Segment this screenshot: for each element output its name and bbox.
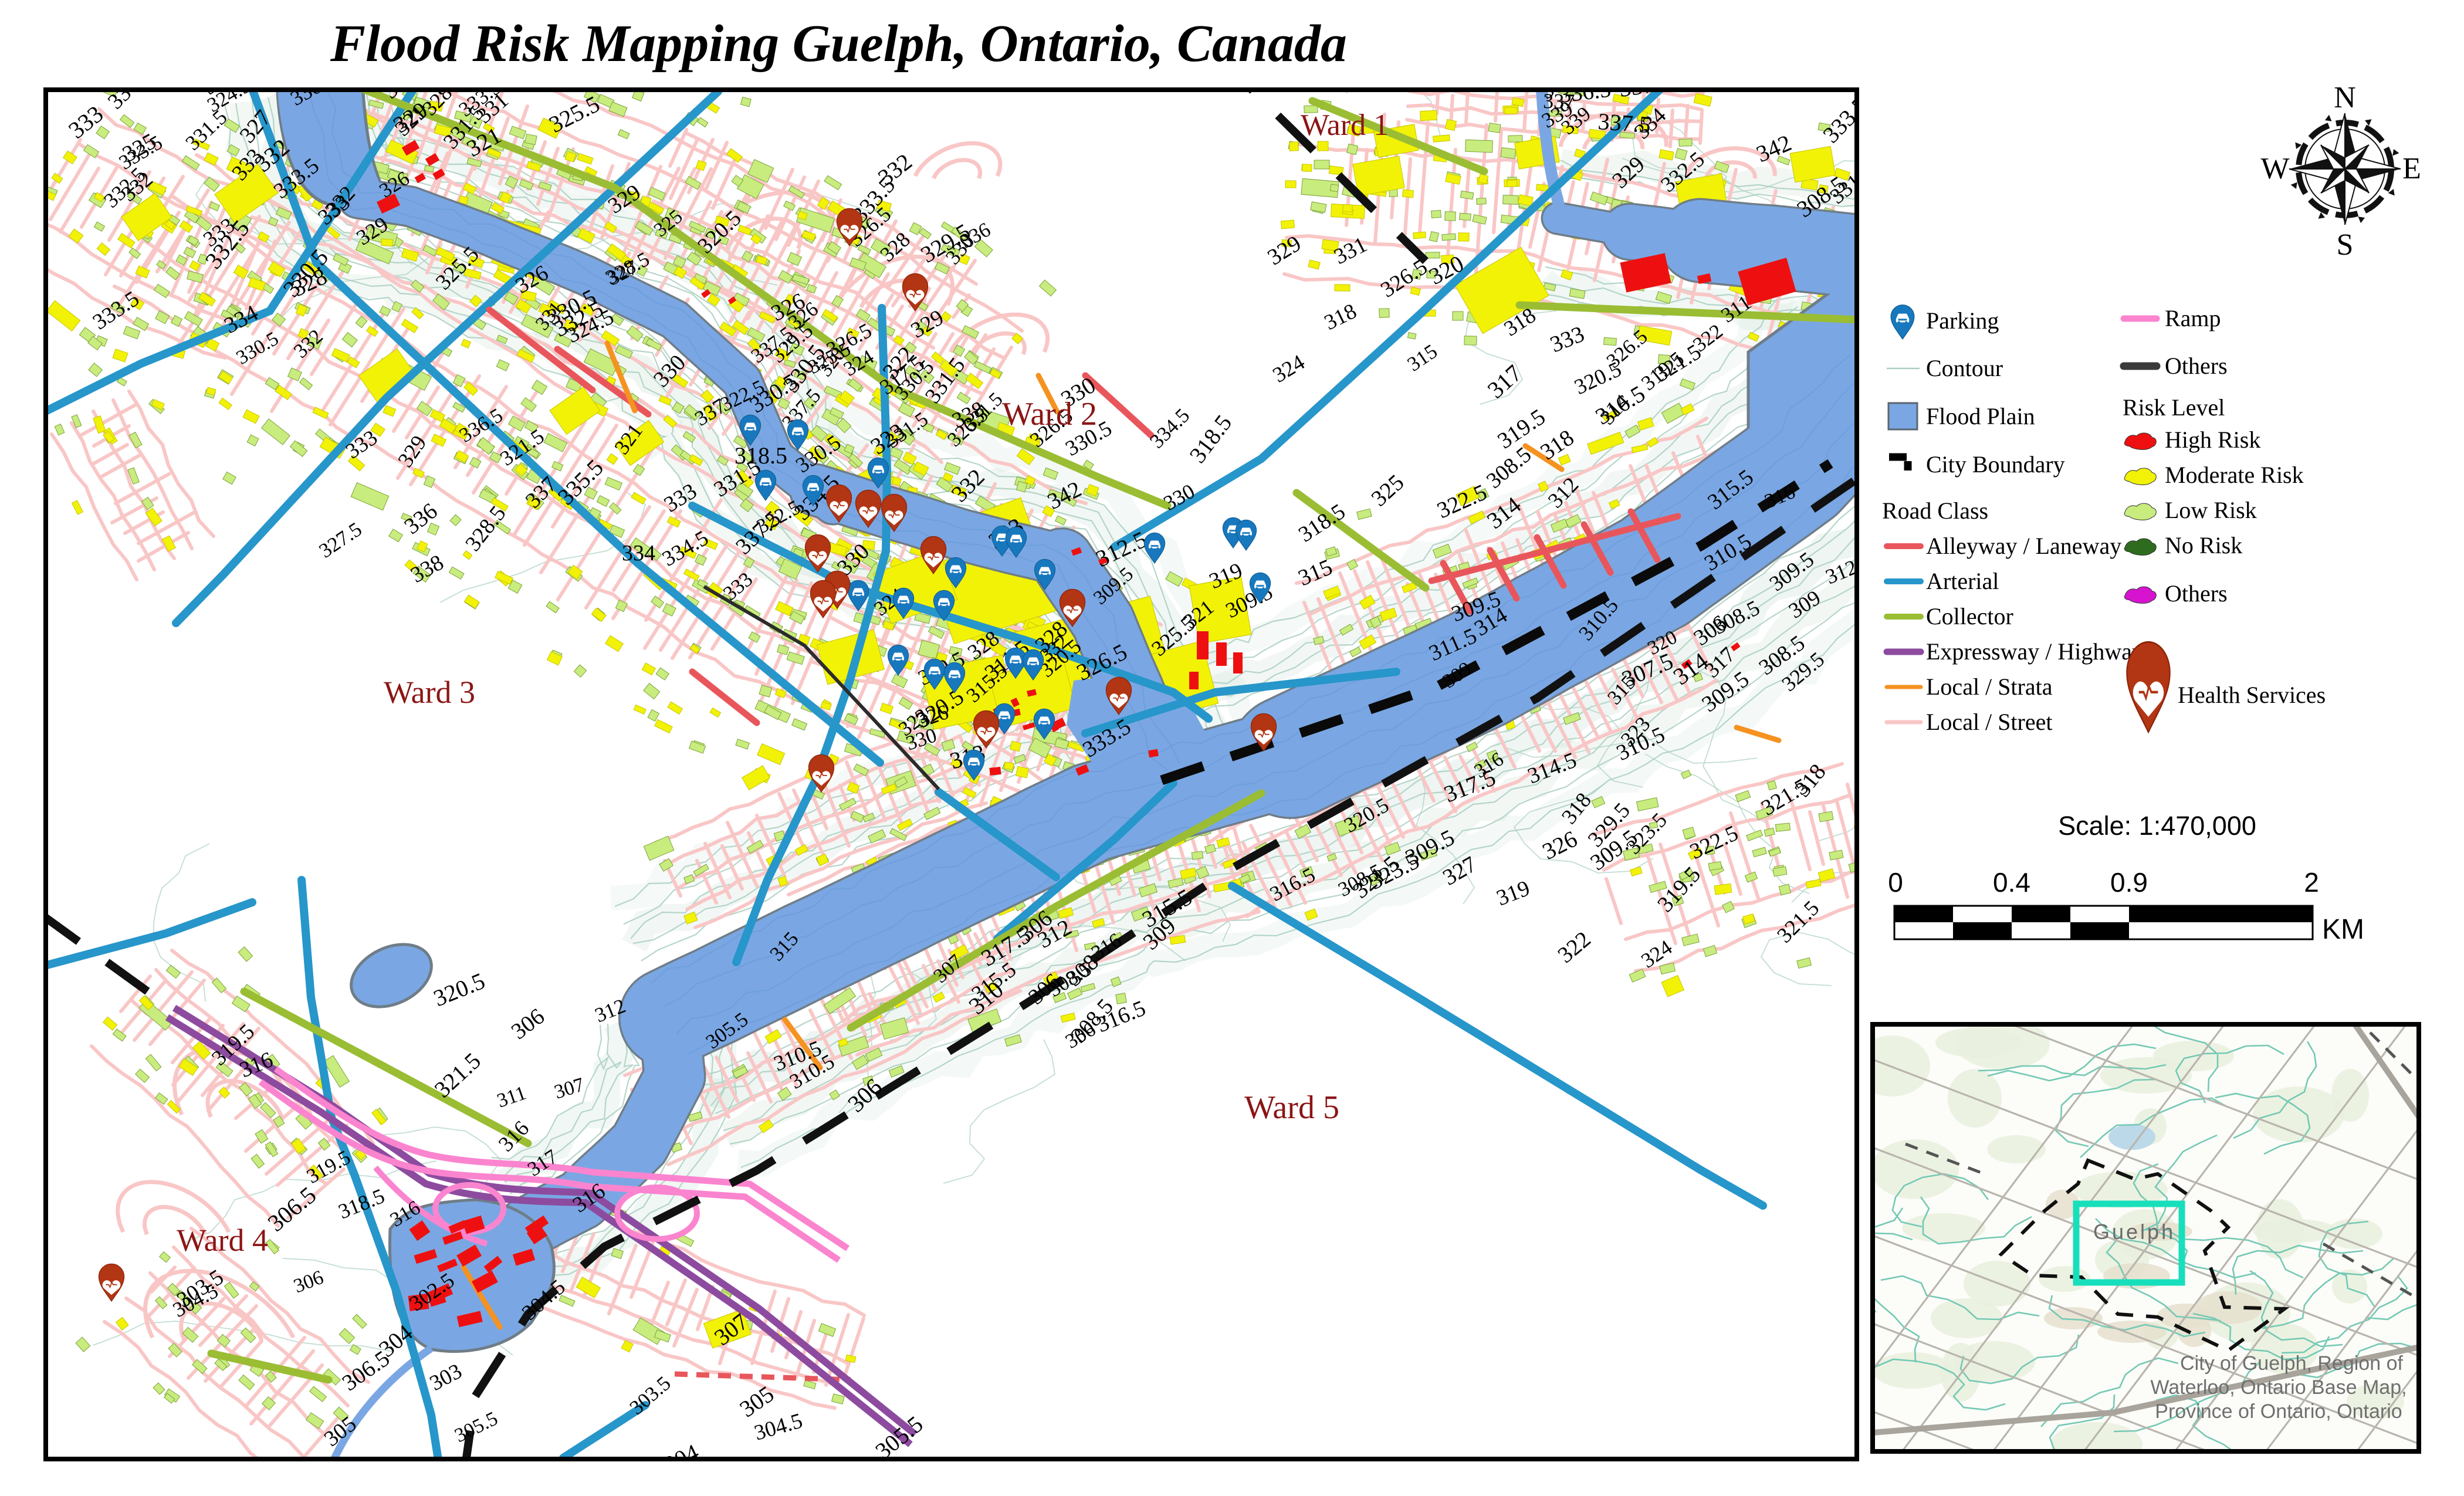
svg-text:Ward 3: Ward 3 bbox=[384, 675, 475, 710]
svg-text:City Boundary: City Boundary bbox=[1926, 451, 2065, 478]
svg-text:324: 324 bbox=[1269, 350, 1309, 388]
svg-text:Flood Plain: Flood Plain bbox=[1926, 403, 2035, 429]
svg-text:Ward 1: Ward 1 bbox=[1301, 109, 1389, 142]
svg-text:Ramp: Ramp bbox=[2165, 305, 2221, 331]
svg-text:Expressway / Highway: Expressway / Highway bbox=[1926, 638, 2144, 665]
svg-text:329.5: 329.5 bbox=[149, 45, 196, 94]
svg-text:333: 333 bbox=[1546, 321, 1588, 358]
svg-text:318: 318 bbox=[1321, 299, 1360, 335]
svg-text:305.5: 305.5 bbox=[451, 1407, 501, 1447]
svg-text:W: W bbox=[2260, 152, 2289, 185]
svg-text:333.5: 333.5 bbox=[89, 286, 144, 335]
svg-text:0.9: 0.9 bbox=[2110, 867, 2148, 898]
svg-text:Guelph: Guelph bbox=[2093, 1220, 2175, 1244]
svg-text:318.5: 318.5 bbox=[735, 442, 787, 469]
svg-text:Road Class: Road Class bbox=[1882, 497, 1988, 524]
svg-text:321.5: 321.5 bbox=[1772, 896, 1824, 948]
svg-text:Flood Risk Mapping Guelph, Ont: Flood Risk Mapping Guelph, Ontario, Cana… bbox=[330, 15, 1347, 73]
svg-text:320.5: 320.5 bbox=[430, 967, 489, 1011]
svg-text:Contour: Contour bbox=[1926, 355, 2003, 381]
svg-text:Ward 5: Ward 5 bbox=[1244, 1089, 1339, 1126]
svg-text:N: N bbox=[2334, 81, 2356, 114]
svg-text:0: 0 bbox=[1888, 867, 1903, 898]
svg-text:318.5: 318.5 bbox=[1294, 499, 1350, 547]
svg-text:334.5: 334.5 bbox=[1145, 404, 1194, 452]
svg-text:E: E bbox=[2402, 152, 2421, 185]
svg-text:303: 303 bbox=[426, 1359, 466, 1396]
svg-text:327.5: 327.5 bbox=[315, 517, 366, 562]
svg-text:306.5: 306.5 bbox=[262, 1181, 321, 1237]
svg-text:334: 334 bbox=[622, 541, 655, 566]
svg-text:Scale: 1:470,000: Scale: 1:470,000 bbox=[2058, 811, 2256, 841]
svg-text:0.4: 0.4 bbox=[1993, 867, 2030, 898]
svg-text:315: 315 bbox=[1403, 340, 1441, 376]
svg-text:307: 307 bbox=[552, 1074, 587, 1103]
svg-text:Ward 2: Ward 2 bbox=[1002, 396, 1097, 432]
svg-text:2: 2 bbox=[2304, 867, 2319, 898]
svg-text:319: 319 bbox=[1493, 876, 1533, 911]
svg-text:317: 317 bbox=[1482, 359, 1527, 403]
svg-text:337.5: 337.5 bbox=[1597, 108, 1651, 138]
svg-text:Parking: Parking bbox=[1926, 307, 1999, 334]
svg-text:KM: KM bbox=[2322, 914, 2364, 945]
svg-text:Waterloo, Ontario Base Map,: Waterloo, Ontario Base Map, bbox=[2150, 1376, 2407, 1399]
svg-text:Province of Ontario, Ontario: Province of Ontario, Ontario bbox=[2155, 1400, 2402, 1423]
svg-text:Local / Strata: Local / Strata bbox=[1926, 673, 2053, 700]
svg-text:S: S bbox=[2337, 228, 2354, 262]
svg-text:306: 306 bbox=[291, 1267, 327, 1298]
svg-text:No Risk: No Risk bbox=[2165, 532, 2242, 559]
svg-text:Local / Street: Local / Street bbox=[1926, 709, 2052, 735]
svg-text:Moderate Risk: Moderate Risk bbox=[2165, 462, 2304, 488]
svg-text:City of Guelph, Region of: City of Guelph, Region of bbox=[2180, 1352, 2403, 1375]
svg-text:Alleyway / Laneway: Alleyway / Laneway bbox=[1926, 533, 2121, 559]
svg-text:High Risk: High Risk bbox=[2165, 427, 2260, 453]
svg-text:330: 330 bbox=[103, 73, 144, 114]
svg-text:338: 338 bbox=[407, 550, 448, 588]
svg-text:322: 322 bbox=[1553, 926, 1595, 968]
svg-text:Others: Others bbox=[2165, 353, 2228, 379]
svg-text:311: 311 bbox=[495, 1082, 529, 1112]
svg-text:325: 325 bbox=[1366, 470, 1409, 512]
svg-text:Low Risk: Low Risk bbox=[2165, 497, 2257, 523]
svg-text:306: 306 bbox=[507, 1004, 550, 1045]
svg-text:337: 337 bbox=[1617, 71, 1656, 102]
svg-text:Others: Others bbox=[2165, 580, 2228, 607]
svg-text:Arterial: Arterial bbox=[1926, 568, 1999, 594]
svg-text:Collector: Collector bbox=[1926, 603, 2013, 629]
svg-text:Risk Level: Risk Level bbox=[2123, 394, 2225, 421]
svg-text:325.5: 325.5 bbox=[545, 90, 604, 138]
svg-text:337: 337 bbox=[1543, 89, 1575, 113]
svg-text:Health Services: Health Services bbox=[2178, 682, 2326, 708]
svg-text:Ward 4: Ward 4 bbox=[177, 1223, 268, 1258]
svg-text:333.5: 333.5 bbox=[1817, 92, 1873, 148]
svg-text:330: 330 bbox=[1159, 479, 1199, 515]
